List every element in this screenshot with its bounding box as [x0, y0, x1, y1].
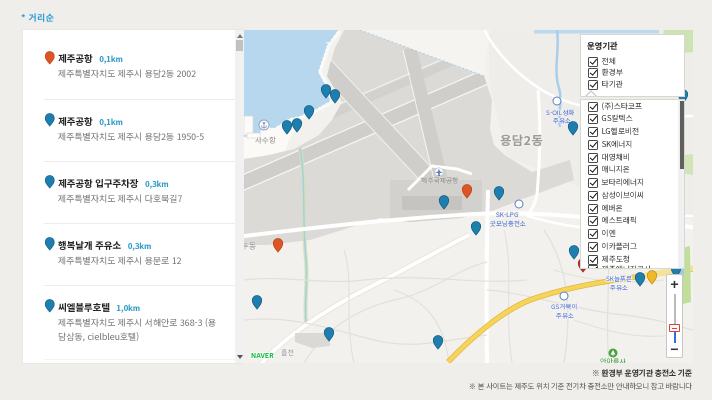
svg-text:주유소: 주유소: [609, 282, 628, 292]
svg-text:제주국제공항: 제주국제공항: [420, 175, 459, 185]
svg-text:굿모닝충전소: 굿모닝충전소: [489, 218, 526, 228]
svg-text:도두동: 도두동: [244, 241, 256, 252]
svg-text:사수항: 사수항: [255, 135, 276, 146]
svg-text:주유소: 주유소: [552, 115, 571, 125]
svg-text:흘천: 흘천: [281, 348, 294, 358]
svg-text:주유소: 주유소: [555, 310, 574, 320]
svg-text:안아름사: 안아름사: [600, 357, 626, 363]
svg-text:NAVER: NAVER: [251, 351, 275, 361]
svg-text:용담2동: 용담2동: [500, 130, 543, 149]
